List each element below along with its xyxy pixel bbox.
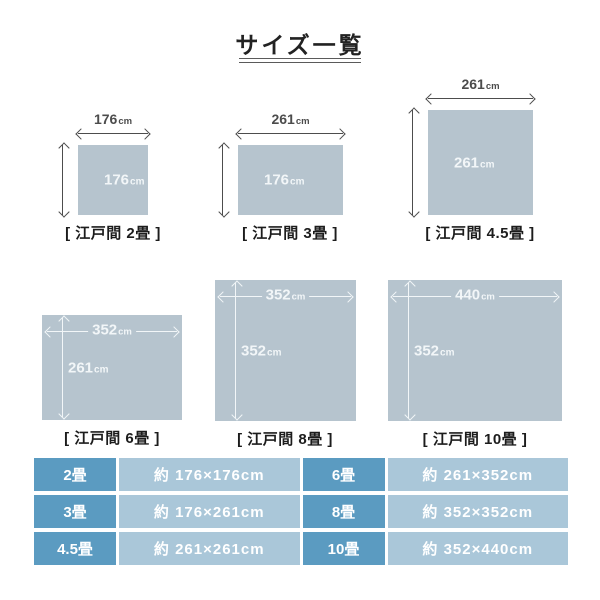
width-unit: cm xyxy=(481,292,495,303)
dimension-cell: 約 352×352cm xyxy=(388,495,569,528)
dimension-cell: 約 352×440cm xyxy=(388,532,569,565)
rug-shape: 352cm 352cm xyxy=(215,280,356,421)
height-dimension-label: 261cm xyxy=(454,154,494,171)
size-chart-page: サイズ一覧 176cm 176cm [ 江戸間 2畳 ] 261cm 176cm… xyxy=(0,0,600,600)
width-unit: cm xyxy=(486,81,500,92)
width-arrow-icon xyxy=(428,98,533,99)
height-unit: cm xyxy=(290,177,304,188)
rug-shape: 440cm 352cm xyxy=(388,280,562,421)
width-unit: cm xyxy=(296,116,310,127)
width-value: 261 xyxy=(271,111,294,127)
width-dimension-label: 352cm xyxy=(262,287,310,306)
height-arrow-icon xyxy=(222,145,223,215)
diagram-caption: [ 江戸間 2畳 ] xyxy=(65,222,161,243)
rug-shape: 176cm xyxy=(78,145,148,215)
diagram-caption: [ 江戸間 6畳 ] xyxy=(64,427,160,448)
height-unit: cm xyxy=(130,177,144,188)
width-unit: cm xyxy=(118,116,132,127)
height-value: 352 xyxy=(241,342,266,359)
height-arrow-icon xyxy=(62,318,63,417)
width-unit: cm xyxy=(118,327,132,338)
width-dimension-label: 261cm xyxy=(238,110,343,128)
height-arrow-icon xyxy=(408,283,409,418)
width-value: 352 xyxy=(92,322,117,339)
width-value: 176 xyxy=(94,111,117,127)
table-row: 2畳 約 176×176cm 6畳 約 261×352cm xyxy=(34,458,568,491)
rug-shape: 176cm xyxy=(238,145,343,215)
dimension-cell: 約 176×261cm xyxy=(119,495,300,528)
height-unit: cm xyxy=(94,364,108,375)
diagram-caption: [ 江戸間 8畳 ] xyxy=(237,428,333,449)
width-value: 440 xyxy=(455,287,480,304)
height-value: 261 xyxy=(68,359,93,376)
width-dimension-label: 176cm xyxy=(78,110,148,128)
diagram-caption: [ 江戸間 3畳 ] xyxy=(242,222,338,243)
height-dimension-label: 352cm xyxy=(241,342,281,359)
height-value: 176 xyxy=(264,172,289,189)
height-arrow-icon xyxy=(62,145,63,215)
height-dimension-label: 176cm xyxy=(104,172,144,189)
height-arrow-icon xyxy=(412,110,413,215)
dimension-cell: 約 261×261cm xyxy=(119,532,300,565)
height-unit: cm xyxy=(267,347,281,358)
size-cell: 2畳 xyxy=(34,458,116,491)
page-title: サイズ一覧 xyxy=(0,26,600,60)
diagram-caption: [ 江戸間 10畳 ] xyxy=(423,428,528,449)
table-row: 3畳 約 176×261cm 8畳 約 352×352cm xyxy=(34,495,568,528)
height-unit: cm xyxy=(480,159,494,170)
size-cell: 3畳 xyxy=(34,495,116,528)
width-dimension-label: 261cm xyxy=(428,75,533,93)
size-cell: 6畳 xyxy=(303,458,385,491)
height-value: 176 xyxy=(104,172,129,189)
width-arrow-icon xyxy=(238,133,343,134)
size-cell: 8畳 xyxy=(303,495,385,528)
height-dimension-label: 176cm xyxy=(264,172,304,189)
height-unit: cm xyxy=(440,347,454,358)
width-dimension-label: 440cm xyxy=(451,287,499,306)
width-value: 261 xyxy=(461,76,484,92)
height-dimension-label: 352cm xyxy=(414,342,454,359)
size-table: 2畳 約 176×176cm 6畳 約 261×352cm 3畳 約 176×2… xyxy=(34,458,568,565)
height-dimension-label: 261cm xyxy=(68,359,108,376)
table-row: 4.5畳 約 261×261cm 10畳 約 352×440cm xyxy=(34,532,568,565)
dimension-cell: 約 261×352cm xyxy=(388,458,569,491)
dimension-cell: 約 176×176cm xyxy=(119,458,300,491)
width-arrow-icon xyxy=(78,133,148,134)
height-value: 261 xyxy=(454,154,479,171)
rug-shape: 261cm xyxy=(428,110,533,215)
width-dimension-label: 352cm xyxy=(88,322,136,341)
title-underline xyxy=(239,58,361,63)
size-cell: 10畳 xyxy=(303,532,385,565)
height-value: 352 xyxy=(414,342,439,359)
diagram-caption: [ 江戸間 4.5畳 ] xyxy=(425,222,534,243)
width-unit: cm xyxy=(292,292,306,303)
rug-shape: 352cm 261cm xyxy=(42,315,182,420)
height-arrow-icon xyxy=(235,283,236,418)
width-value: 352 xyxy=(266,287,291,304)
size-cell: 4.5畳 xyxy=(34,532,116,565)
